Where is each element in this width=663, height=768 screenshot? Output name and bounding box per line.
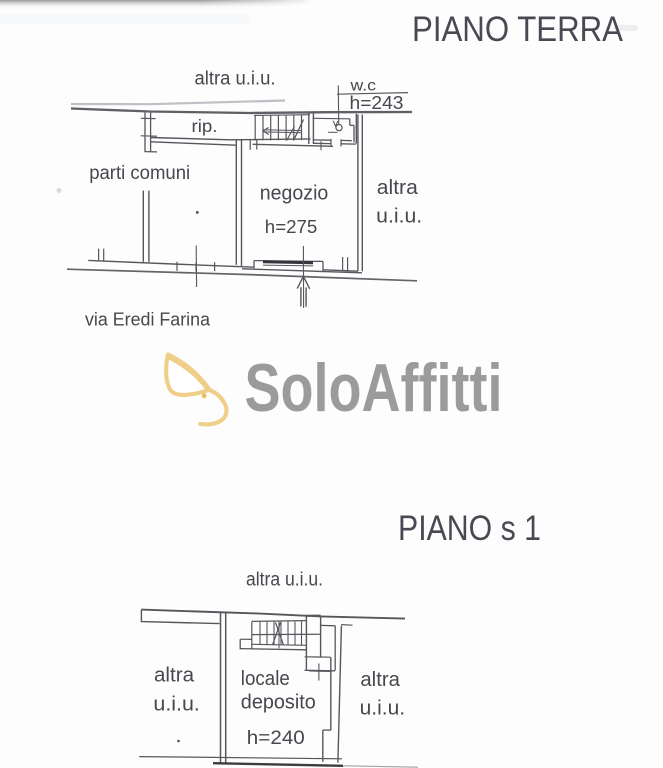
svg-text:SoloAffitti: SoloAffitti — [245, 350, 503, 426]
svg-text:PIANO s 1: PIANO s 1 — [398, 508, 541, 548]
svg-text:rip.: rip. — [192, 116, 218, 136]
svg-text:parti comuni: parti comuni — [89, 162, 190, 184]
svg-text:altra: altra — [360, 668, 400, 691]
svg-text:h=243: h=243 — [350, 92, 404, 113]
svg-text:negozio: negozio — [260, 182, 329, 204]
svg-text:h=240: h=240 — [247, 727, 305, 749]
svg-text:locale: locale — [241, 667, 290, 690]
svg-text:altra u.i.u.: altra u.i.u. — [195, 68, 276, 90]
svg-text:u.i.u.: u.i.u. — [153, 693, 200, 716]
svg-text:altra: altra — [154, 664, 195, 687]
svg-text:h=275: h=275 — [265, 216, 318, 237]
svg-text:PIANO TERRA: PIANO TERRA — [412, 9, 623, 49]
svg-text:altra u.i.u.: altra u.i.u. — [246, 569, 323, 591]
svg-text:u.i.u.: u.i.u. — [360, 697, 406, 720]
svg-text:altra: altra — [377, 177, 419, 199]
svg-text:via Eredi Farina: via Eredi Farina — [85, 308, 211, 329]
svg-text:u.i.u.: u.i.u. — [376, 206, 422, 228]
svg-text:deposito: deposito — [241, 690, 316, 713]
